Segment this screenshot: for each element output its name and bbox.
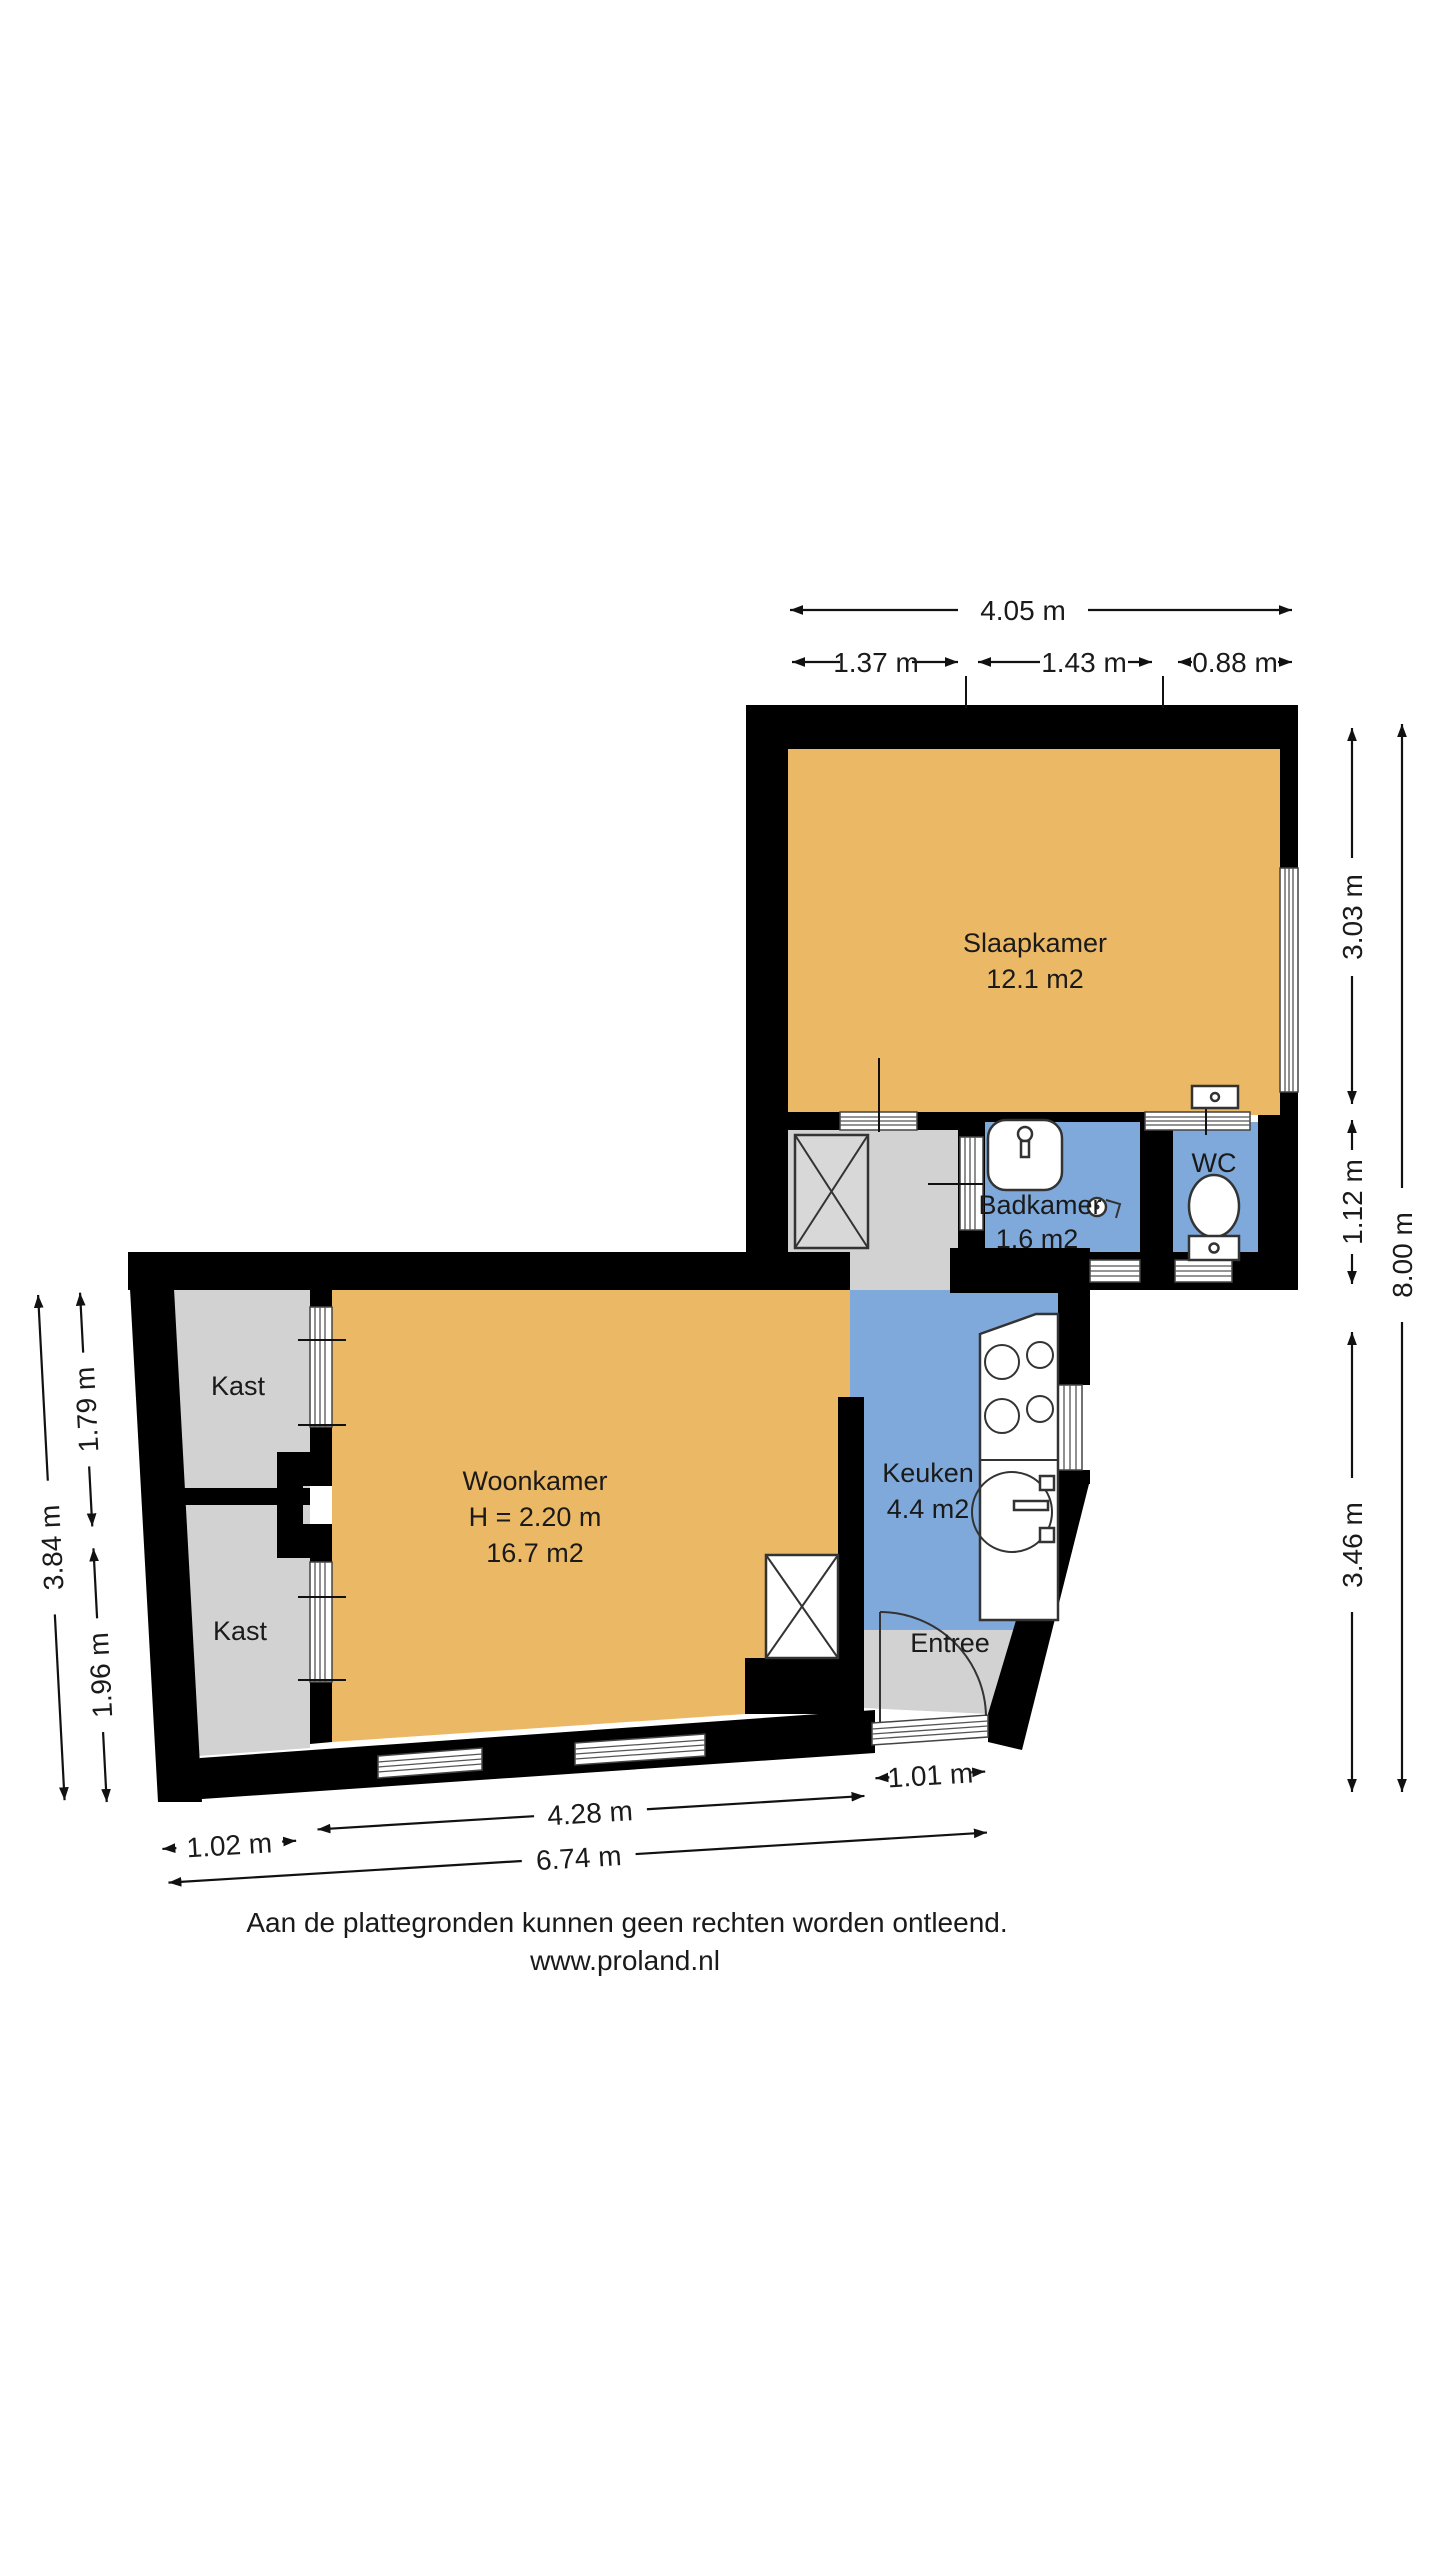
svg-text:4.28 m: 4.28 m xyxy=(546,1795,633,1831)
dim-bottom-totaal: 6.74 m xyxy=(168,1818,988,1899)
dim-top-seg3: 0.88 m xyxy=(1178,647,1292,678)
window-badkamer xyxy=(1090,1260,1140,1282)
kast-boven-label: Kast xyxy=(211,1371,266,1401)
dim-bottom-entree: 1.01 m xyxy=(874,1757,986,1795)
hall-shaft-icon xyxy=(795,1135,868,1248)
svg-text:1.01 m: 1.01 m xyxy=(887,1757,974,1793)
dim-bottom-kast: 1.02 m xyxy=(161,1826,297,1865)
window-wc xyxy=(1175,1260,1232,1282)
svg-text:3.84 m: 3.84 m xyxy=(34,1504,69,1591)
badkamer-area: 1.6 m2 xyxy=(996,1224,1079,1254)
floor-plan-page: Slaapkamer 12.1 m2 Badkamer 1.6 m2 WC Wo… xyxy=(0,0,1440,2560)
wall-top xyxy=(746,705,1298,749)
svg-text:6.74 m: 6.74 m xyxy=(535,1840,622,1876)
wall-keuken-top-pillar xyxy=(950,1248,1090,1293)
dim-bottom-woonkamer: 4.28 m xyxy=(317,1781,866,1845)
dim-right-woonkamer: 3.46 m xyxy=(1337,1332,1368,1792)
svg-text:0.88 m: 0.88 m xyxy=(1192,647,1278,678)
keuken-area: 4.4 m2 xyxy=(887,1494,970,1524)
kitchen-counter xyxy=(972,1314,1058,1620)
badkamer-label: Badkamer xyxy=(978,1190,1101,1220)
svg-text:4.05 m: 4.05 m xyxy=(980,595,1066,626)
woonkamer-height: H = 2.20 m xyxy=(469,1502,602,1532)
wall-upper-left xyxy=(746,705,788,1290)
dim-right-totaal: 8.00 m xyxy=(1387,724,1418,1792)
floor-plan-svg: Slaapkamer 12.1 m2 Badkamer 1.6 m2 WC Wo… xyxy=(0,0,1440,2560)
dim-top-total: 4.05 m xyxy=(790,595,1292,626)
dim-top-seg1: 1.37 m xyxy=(792,647,958,678)
dimensions-left: 1.79 m 1.96 m 3.84 m xyxy=(23,1292,123,1805)
wc-label: WC xyxy=(1192,1148,1237,1178)
dimensions-top: 4.05 m 1.37 m 1.43 m 0.88 m xyxy=(790,595,1292,708)
dimensions-right: 3.03 m 1.12 m 3.46 m 8.00 m xyxy=(1337,724,1418,1792)
svg-text:8.00 m: 8.00 m xyxy=(1387,1212,1418,1298)
wall-keuken-right-b xyxy=(1058,1470,1090,1484)
dim-left-kast-onder: 1.96 m xyxy=(78,1548,122,1803)
svg-text:3.46 m: 3.46 m xyxy=(1337,1502,1368,1588)
svg-text:1.79 m: 1.79 m xyxy=(69,1366,104,1453)
disclaimer-text: Aan de plattegronden kunnen geen rechten… xyxy=(246,1907,1007,1938)
footer: Aan de plattegronden kunnen geen rechten… xyxy=(246,1907,1007,1976)
dim-right-slaapkamer: 3.03 m xyxy=(1337,728,1368,1104)
svg-text:1.37 m: 1.37 m xyxy=(833,647,919,678)
wall-chimney-base xyxy=(745,1658,864,1714)
bathroom-sink-icon xyxy=(988,1120,1062,1190)
dim-left-kast-boven: 1.79 m xyxy=(65,1292,108,1527)
dim-right-badkamer-wc: 1.12 m xyxy=(1337,1120,1368,1284)
woonkamer-label: Woonkamer xyxy=(462,1466,607,1496)
website-text: www.proland.nl xyxy=(529,1945,720,1976)
svg-text:1.43 m: 1.43 m xyxy=(1041,647,1127,678)
wall-lower-top xyxy=(128,1252,850,1290)
chimney-icon xyxy=(766,1555,838,1658)
kast-onder-label: Kast xyxy=(213,1616,268,1646)
entree-label: Entree xyxy=(910,1628,990,1658)
window-keuken xyxy=(1058,1385,1082,1470)
svg-text:3.03 m: 3.03 m xyxy=(1337,874,1368,960)
slaapkamer-area: 12.1 m2 xyxy=(986,964,1084,994)
svg-text:1.02 m: 1.02 m xyxy=(186,1827,273,1863)
wall-keuken-right-a xyxy=(1058,1290,1090,1385)
wall-slaap-hall-a xyxy=(788,1112,840,1130)
svg-text:1.12 m: 1.12 m xyxy=(1337,1159,1368,1245)
wall-woonkamer-keuken-divider xyxy=(838,1397,864,1658)
keuken-label: Keuken xyxy=(882,1458,974,1488)
svg-text:1.96 m: 1.96 m xyxy=(83,1632,118,1719)
woonkamer-area: 16.7 m2 xyxy=(486,1538,584,1568)
slaapkamer-label: Slaapkamer xyxy=(963,928,1107,958)
window-slaapkamer xyxy=(1280,868,1298,1092)
dim-top-seg2: 1.43 m xyxy=(978,647,1152,678)
